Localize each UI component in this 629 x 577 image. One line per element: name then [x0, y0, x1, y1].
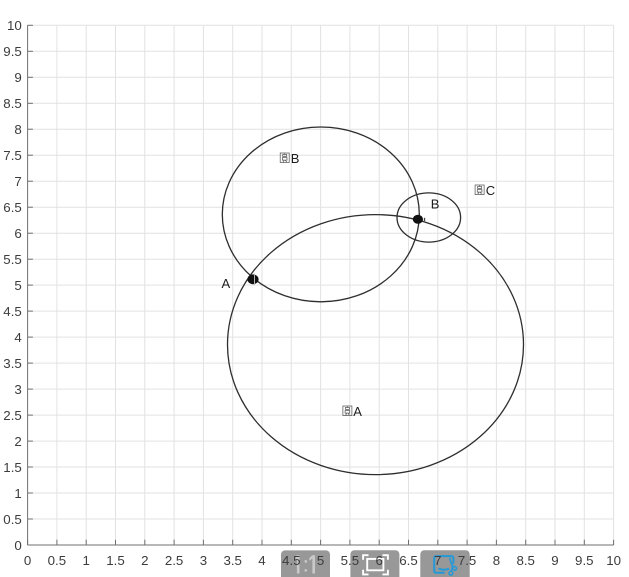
- svg-text:9: 9: [551, 553, 558, 568]
- svg-text:3: 3: [14, 382, 21, 397]
- svg-text:B: B: [291, 151, 300, 166]
- svg-text:3.5: 3.5: [223, 553, 242, 568]
- svg-text:8: 8: [493, 553, 500, 568]
- svg-text:4: 4: [258, 553, 265, 568]
- svg-text:2: 2: [141, 553, 148, 568]
- svg-text:1: 1: [82, 553, 89, 568]
- svg-text:C: C: [486, 183, 495, 198]
- svg-text:3.5: 3.5: [3, 356, 22, 371]
- svg-text:7: 7: [434, 553, 441, 568]
- svg-text:9.5: 9.5: [575, 553, 594, 568]
- svg-text:7.5: 7.5: [458, 553, 477, 568]
- svg-text:6: 6: [375, 553, 382, 568]
- svg-text:1.5: 1.5: [106, 553, 125, 568]
- svg-text:0.5: 0.5: [48, 553, 67, 568]
- svg-text:8.5: 8.5: [3, 96, 22, 111]
- svg-text:5.5: 5.5: [341, 553, 360, 568]
- svg-text:10: 10: [606, 553, 621, 568]
- svg-text:0: 0: [24, 553, 31, 568]
- svg-text:2: 2: [14, 434, 21, 449]
- svg-text:7.5: 7.5: [3, 148, 22, 163]
- svg-text:1: 1: [14, 486, 21, 501]
- svg-text:A: A: [222, 276, 231, 291]
- svg-text:5: 5: [14, 278, 21, 293]
- svg-text:A: A: [353, 404, 362, 419]
- svg-text:5: 5: [317, 553, 324, 568]
- svg-text:8.5: 8.5: [516, 553, 535, 568]
- svg-text:0.5: 0.5: [3, 512, 22, 527]
- svg-text:1.5: 1.5: [3, 460, 22, 475]
- svg-text:4.5: 4.5: [282, 553, 301, 568]
- svg-text:4.5: 4.5: [3, 304, 22, 319]
- svg-text:3: 3: [200, 553, 207, 568]
- svg-text:5.5: 5.5: [3, 252, 22, 267]
- svg-text:9: 9: [14, 70, 21, 85]
- svg-text:9.5: 9.5: [3, 44, 22, 59]
- svg-text:10: 10: [7, 18, 22, 33]
- svg-text:8: 8: [14, 122, 21, 137]
- svg-text:2.5: 2.5: [3, 408, 22, 423]
- svg-text:4: 4: [14, 330, 21, 345]
- svg-text:7: 7: [14, 174, 21, 189]
- svg-text:B: B: [431, 197, 440, 212]
- svg-text:6: 6: [14, 226, 21, 241]
- svg-text:0: 0: [14, 538, 21, 553]
- svg-text:6.5: 6.5: [399, 553, 418, 568]
- svg-text:6.5: 6.5: [3, 200, 22, 215]
- svg-text:2.5: 2.5: [165, 553, 184, 568]
